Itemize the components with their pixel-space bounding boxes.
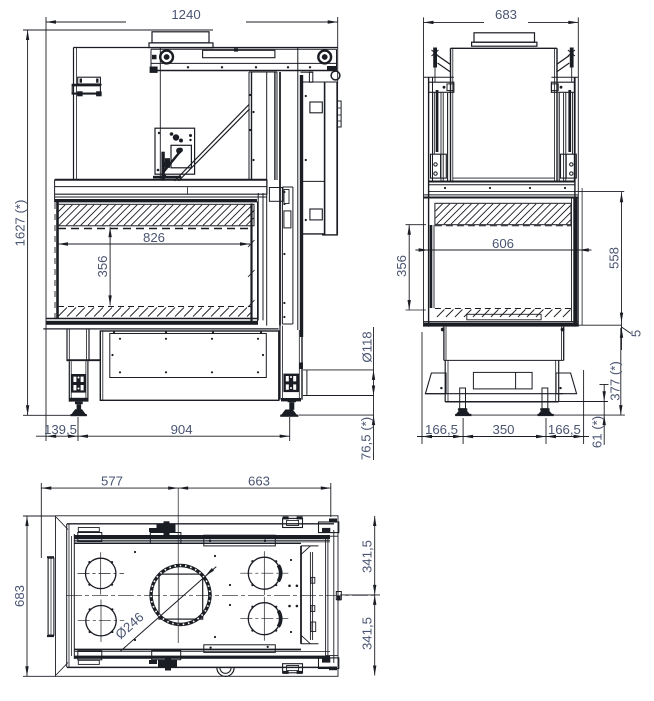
svg-text:Ø118: Ø118 xyxy=(360,331,375,362)
svg-text:683: 683 xyxy=(495,7,517,22)
svg-text:341,5: 341,5 xyxy=(360,617,375,650)
svg-text:683: 683 xyxy=(12,585,27,607)
svg-text:1627 (*): 1627 (*) xyxy=(13,200,28,247)
svg-text:5: 5 xyxy=(629,330,644,337)
svg-text:558: 558 xyxy=(607,247,622,269)
svg-text:377 (*): 377 (*) xyxy=(608,361,623,401)
svg-text:577: 577 xyxy=(101,473,123,488)
svg-text:904: 904 xyxy=(171,422,193,437)
svg-text:76,5 (*): 76,5 (*) xyxy=(359,417,374,460)
svg-text:606: 606 xyxy=(492,236,514,251)
svg-text:61 (*): 61 (*) xyxy=(590,416,605,448)
svg-text:356: 356 xyxy=(95,255,110,277)
svg-text:356: 356 xyxy=(394,255,409,277)
svg-text:663: 663 xyxy=(248,473,270,488)
svg-text:166,5: 166,5 xyxy=(425,422,458,437)
svg-text:139,5: 139,5 xyxy=(44,422,77,437)
svg-text:166,5: 166,5 xyxy=(548,422,581,437)
svg-text:1240: 1240 xyxy=(171,7,200,22)
svg-text:350: 350 xyxy=(492,422,514,437)
svg-text:341,5: 341,5 xyxy=(360,540,375,573)
svg-text:826: 826 xyxy=(143,230,165,245)
